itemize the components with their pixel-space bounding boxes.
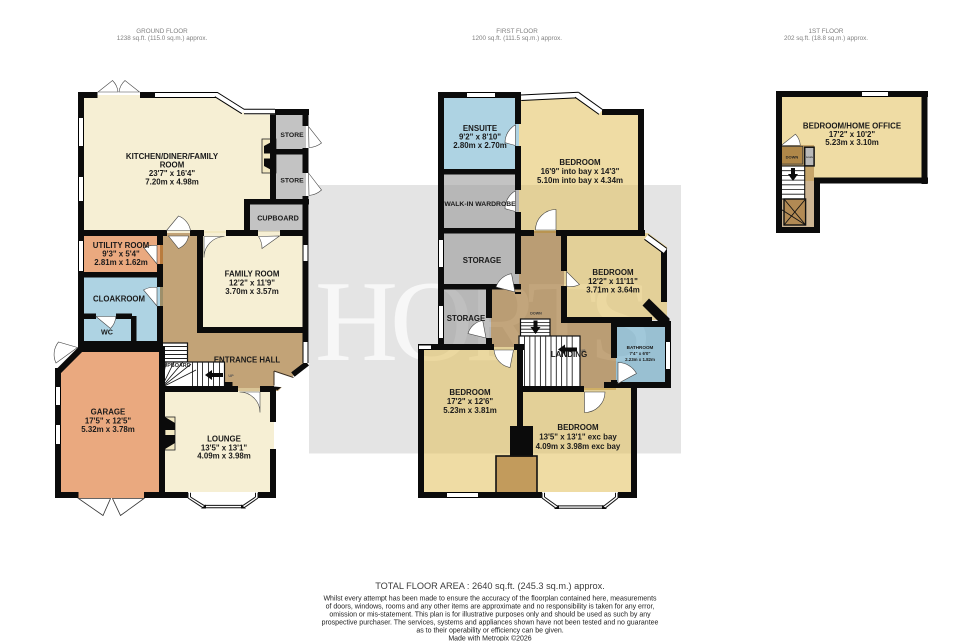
svg-text:DOWN: DOWN <box>806 157 813 159</box>
svg-text:BEDROOM: BEDROOM <box>592 268 634 277</box>
svg-text:STORAGE: STORAGE <box>447 314 485 323</box>
svg-text:BEDROOM: BEDROOM <box>557 423 599 432</box>
svg-text:17'2" x 12'6": 17'2" x 12'6" <box>447 397 494 406</box>
svg-text:5.23m x 3.81m: 5.23m x 3.81m <box>443 406 497 415</box>
svg-text:GROUND FLOOR: GROUND FLOOR <box>136 28 188 35</box>
svg-text:13'5" x 13'1" exc bay: 13'5" x 13'1" exc bay <box>539 433 617 442</box>
svg-text:ENTRANCE HALL: ENTRANCE HALL <box>214 356 281 365</box>
svg-text:Made with Metropix ©2026: Made with Metropix ©2026 <box>448 635 531 641</box>
svg-text:4.09m x 3.98m exc bay: 4.09m x 3.98m exc bay <box>536 442 621 451</box>
svg-text:STORE: STORE <box>280 132 304 139</box>
svg-text:BEDROOM: BEDROOM <box>449 388 491 397</box>
svg-text:GARAGE: GARAGE <box>91 408 126 417</box>
svg-text:DOWN: DOWN <box>786 155 799 160</box>
svg-text:7'4" x 6'0": 7'4" x 6'0" <box>630 351 651 356</box>
svg-text:CUPBOARD: CUPBOARD <box>257 214 299 223</box>
svg-text:2.80m x 2.70m: 2.80m x 2.70m <box>453 141 507 150</box>
svg-text:WC: WC <box>101 328 113 337</box>
svg-text:as to their operability or eff: as to their operability or efficiency ca… <box>416 628 563 635</box>
svg-text:2.23m x 1.82m: 2.23m x 1.82m <box>625 357 655 362</box>
svg-text:202 sq.ft. (18.8 sq.m.) approx: 202 sq.ft. (18.8 sq.m.) approx. <box>784 35 868 42</box>
svg-text:BEDROOM: BEDROOM <box>559 158 601 167</box>
svg-text:2.81m x 1.62m: 2.81m x 1.62m <box>94 258 148 267</box>
svg-text:3.70m x 3.57m: 3.70m x 3.57m <box>225 287 279 296</box>
svg-text:5.32m x 3.78m: 5.32m x 3.78m <box>81 425 135 434</box>
svg-text:STORE: STORE <box>280 178 304 185</box>
svg-text:7.20m x 4.98m: 7.20m x 4.98m <box>145 178 199 187</box>
svg-text:Whilst every attempt has been: Whilst every attempt has been made to en… <box>323 596 657 603</box>
svg-text:BATHROOM: BATHROOM <box>627 345 654 350</box>
svg-text:4.09m x 3.98m: 4.09m x 3.98m <box>197 452 251 461</box>
svg-text:FIRST FLOOR: FIRST FLOOR <box>496 28 538 35</box>
svg-text:DOWN: DOWN <box>530 312 542 316</box>
svg-text:STORAGE: STORAGE <box>463 256 501 265</box>
svg-text:1238 sq.ft. (115.0 sq.m.) appr: 1238 sq.ft. (115.0 sq.m.) approx. <box>117 35 208 42</box>
svg-text:3.71m x 3.64m: 3.71m x 3.64m <box>586 286 640 295</box>
svg-text:FAMILY ROOM: FAMILY ROOM <box>225 270 280 279</box>
svg-text:LOUNGE: LOUNGE <box>207 435 241 444</box>
svg-text:UP: UP <box>228 374 234 378</box>
svg-text:TOTAL FLOOR AREA : 2640 sq.ft.: TOTAL FLOOR AREA : 2640 sq.ft. (245.3 sq… <box>375 581 605 591</box>
svg-text:of doors, windows, rooms and a: of doors, windows, rooms and any other i… <box>326 604 655 611</box>
svg-text:WALK-IN WARDROBE: WALK-IN WARDROBE <box>444 201 516 208</box>
svg-text:prospective purchaser. The ser: prospective purchaser. The services, sys… <box>322 620 659 627</box>
svg-text:5.23m x 3.10m: 5.23m x 3.10m <box>825 138 879 147</box>
svg-text:1200 sq.ft. (111.5 sq.m.) appr: 1200 sq.ft. (111.5 sq.m.) approx. <box>472 35 562 42</box>
svg-text:16'9" into bay x 14'3": 16'9" into bay x 14'3" <box>541 167 620 176</box>
svg-text:CLOAKROOM: CLOAKROOM <box>93 295 145 304</box>
svg-text:omission or mis-statement. Thi: omission or mis-statement. This plan is … <box>329 612 651 619</box>
svg-text:5.10m into bay x 4.34m: 5.10m into bay x 4.34m <box>537 176 623 185</box>
svg-text:1ST FLOOR: 1ST FLOOR <box>809 28 844 35</box>
svg-text:LANDING: LANDING <box>551 350 587 359</box>
